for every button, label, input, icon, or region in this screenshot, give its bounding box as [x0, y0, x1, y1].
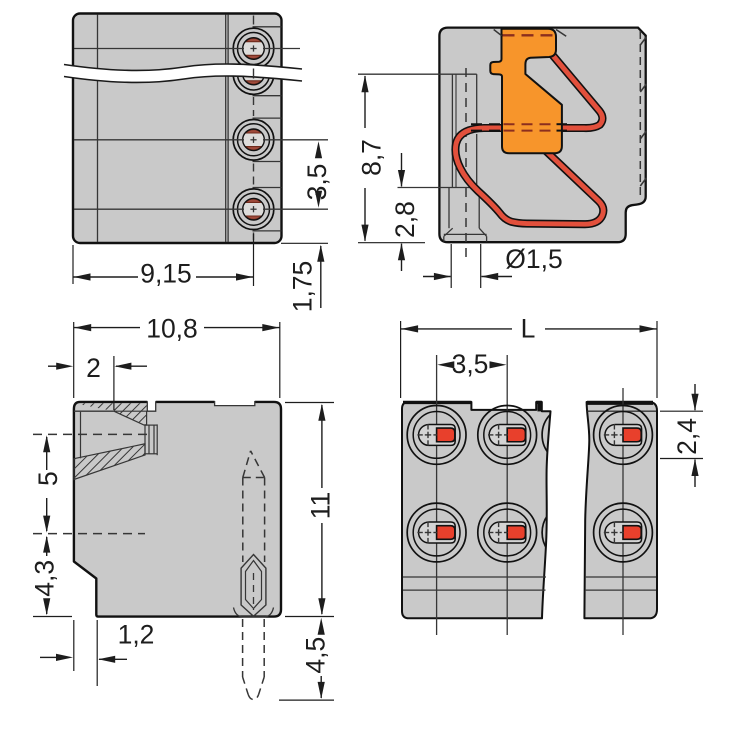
svg-text:1,2: 1,2: [118, 620, 155, 650]
svg-text:5: 5: [33, 471, 63, 486]
svg-text:10,8: 10,8: [146, 314, 198, 344]
svg-text:Ø1,5: Ø1,5: [505, 244, 562, 274]
svg-text:2,4: 2,4: [672, 418, 702, 455]
svg-text:1,75: 1,75: [288, 261, 318, 313]
svg-text:4,5: 4,5: [301, 637, 331, 674]
svg-text:2: 2: [86, 353, 101, 383]
svg-text:L: L: [521, 314, 536, 344]
svg-text:9,15: 9,15: [140, 259, 192, 289]
svg-text:4,3: 4,3: [29, 560, 59, 597]
svg-text:2,8: 2,8: [390, 201, 420, 238]
svg-text:8,7: 8,7: [357, 139, 387, 176]
svg-text:11: 11: [305, 492, 335, 520]
svg-text:3,5: 3,5: [452, 349, 489, 379]
svg-text:3,5: 3,5: [302, 164, 332, 201]
